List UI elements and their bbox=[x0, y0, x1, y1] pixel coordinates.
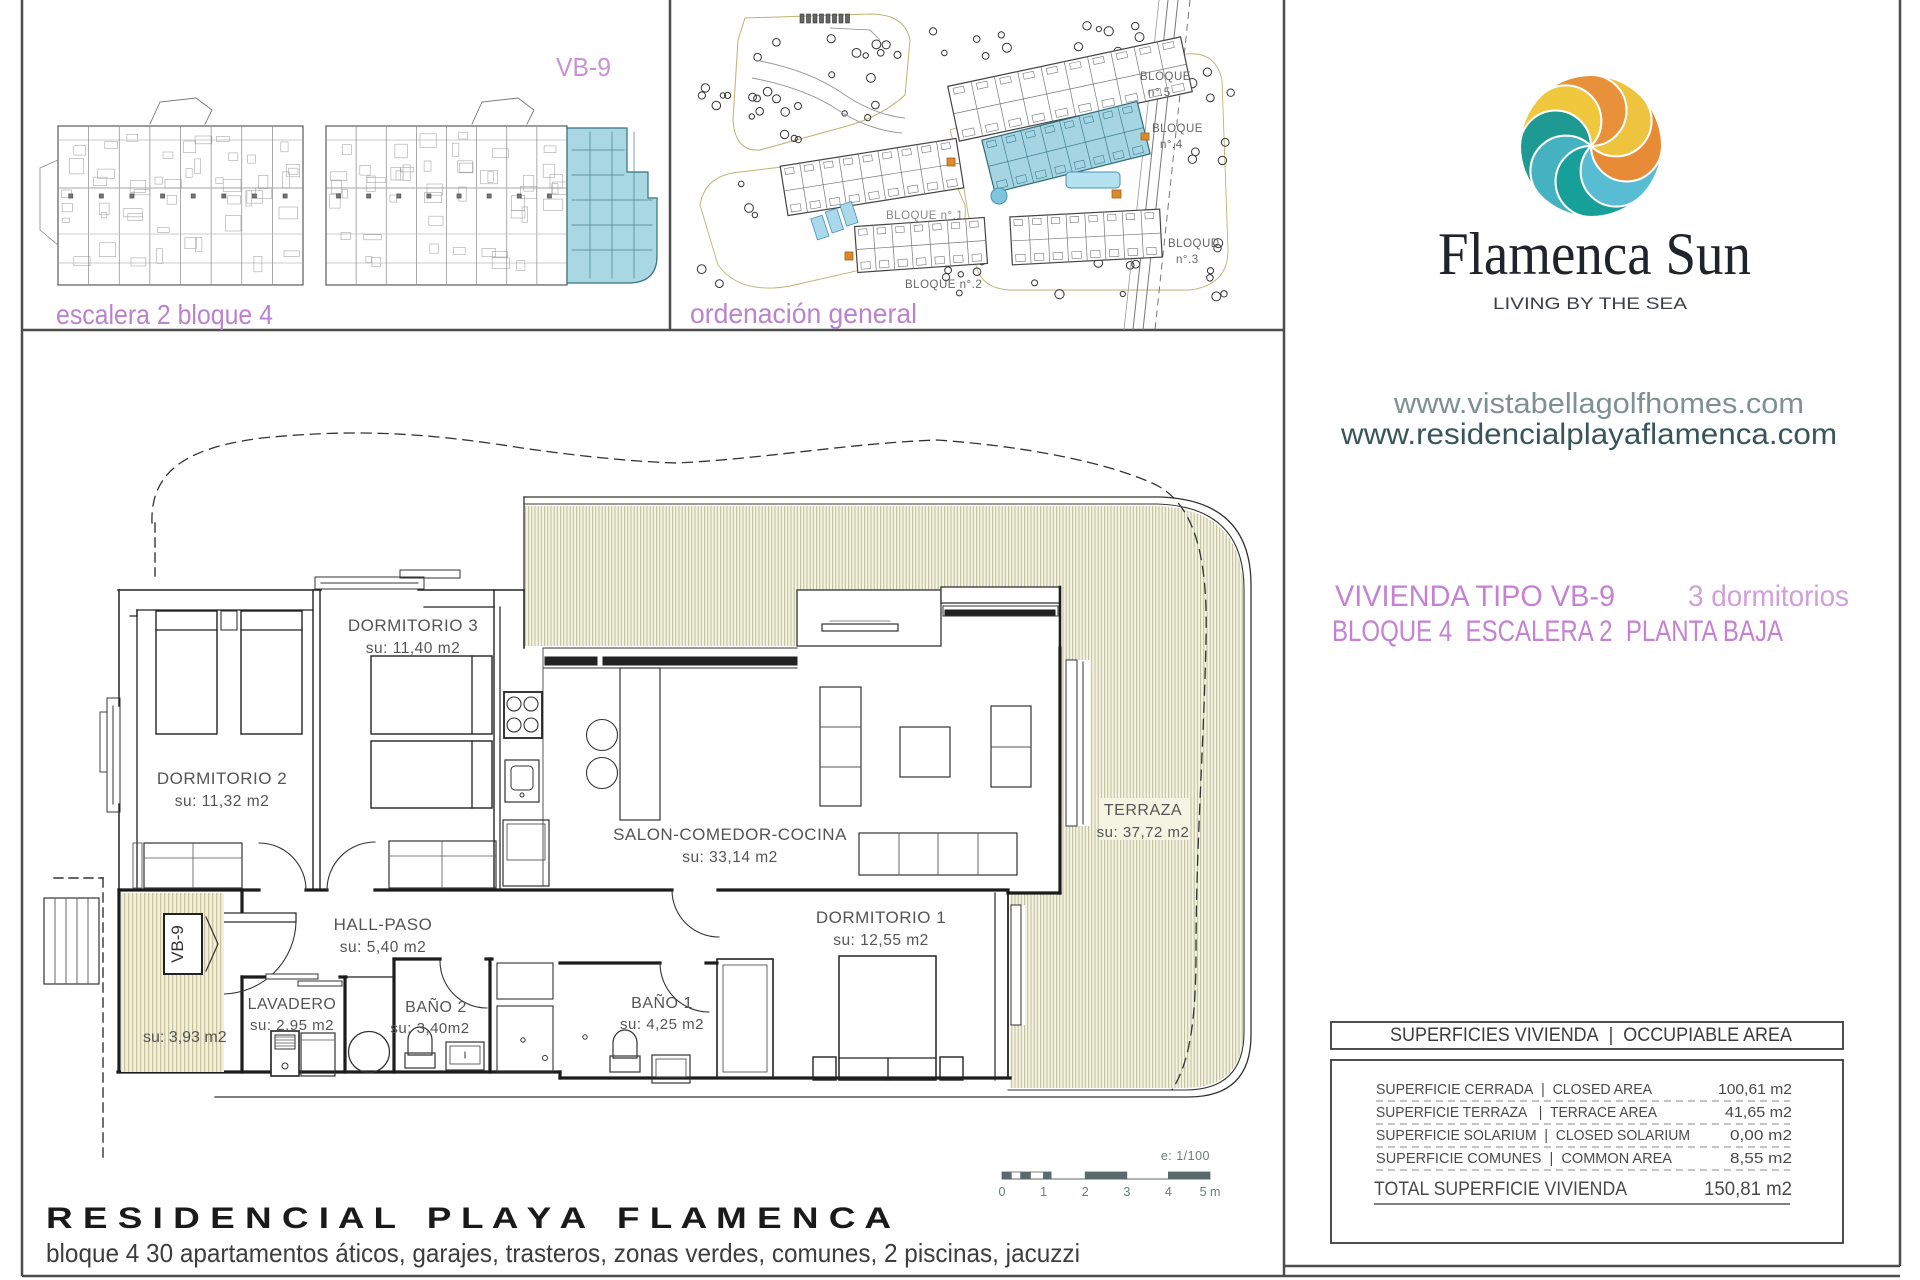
svg-text:2: 2 bbox=[1082, 1185, 1089, 1199]
svg-text:TERRAZA: TERRAZA bbox=[1104, 802, 1182, 819]
svg-text:su: 2,95 m2: su: 2,95 m2 bbox=[250, 1017, 334, 1034]
svg-text:SUPERFICIE CERRADA | CLOSED: SUPERFICIE CERRADA | CLOSED AREA bbox=[1376, 1081, 1652, 1098]
svg-text:HALL-PASO: HALL-PASO bbox=[334, 915, 433, 934]
svg-text:su: 33,14 m2: su: 33,14 m2 bbox=[682, 849, 778, 866]
svg-text:su: 3,93 m2: su: 3,93 m2 bbox=[143, 1029, 227, 1046]
svg-text:8,55 m2: 8,55 m2 bbox=[1730, 1150, 1792, 1167]
svg-text:su: 37,72 m2: su: 37,72 m2 bbox=[1097, 824, 1190, 841]
svg-text:www.residencialplayaflamenca.c: www.residencialplayaflamenca.com bbox=[1340, 418, 1837, 451]
svg-text:SALON-COMEDOR-COCINA: SALON-COMEDOR-COCINA bbox=[613, 825, 847, 844]
svg-text:ordenación general: ordenación general bbox=[690, 298, 917, 329]
svg-text:e: 1/100: e: 1/100 bbox=[1161, 1149, 1210, 1163]
svg-text:su: 11,40 m2: su: 11,40 m2 bbox=[366, 640, 460, 657]
svg-text:LAVADERO: LAVADERO bbox=[248, 996, 337, 1013]
svg-text:su: 5,40 m2: su: 5,40 m2 bbox=[340, 939, 427, 956]
svg-text:5 m: 5 m bbox=[1200, 1185, 1221, 1199]
svg-text:BLOQUE n°.1: BLOQUE n°.1 bbox=[886, 210, 963, 222]
svg-text:0,00 m2: 0,00 m2 bbox=[1730, 1127, 1792, 1144]
svg-text:SUPERFICIE COMUNES | COMMON: SUPERFICIE COMUNES | COMMON AREA bbox=[1376, 1150, 1672, 1167]
svg-text:BLOQUE: BLOQUE bbox=[1152, 123, 1203, 135]
svg-text:LIVING BY THE SEA: LIVING BY THE SEA bbox=[1493, 294, 1688, 313]
svg-text:SUPERFICIE SOLARIUM | CLOSED: SUPERFICIE SOLARIUM | CLOSED SOLARIUM bbox=[1376, 1127, 1690, 1144]
svg-text:TOTAL SUPERFICIE VIVIENDA: TOTAL SUPERFICIE VIVIENDA bbox=[1374, 1179, 1627, 1200]
svg-text:BLOQUE n°.2: BLOQUE n°.2 bbox=[905, 279, 982, 291]
svg-text:3: 3 bbox=[1123, 1185, 1130, 1199]
svg-text:SUPERFICIE TERRAZA | TERRAC: SUPERFICIE TERRAZA | TERRACE AREA bbox=[1376, 1104, 1657, 1121]
svg-text:su: 12,55 m2: su: 12,55 m2 bbox=[833, 932, 929, 949]
svg-text:R E S I D E N C I A L P L A: R E S I D E N C I A L P L A Y A F L A M … bbox=[46, 1202, 891, 1235]
svg-text:n°.3: n°.3 bbox=[1176, 254, 1199, 266]
svg-text:BAÑO 1: BAÑO 1 bbox=[631, 992, 693, 1012]
svg-text:0: 0 bbox=[999, 1185, 1006, 1199]
svg-text:n°.5: n°.5 bbox=[1148, 87, 1171, 99]
svg-text:escalera 2 bloque 4: escalera 2 bloque 4 bbox=[56, 299, 273, 330]
svg-text:su: 11,32 m2: su: 11,32 m2 bbox=[175, 793, 269, 810]
svg-text:3 dormitorios: 3 dormitorios bbox=[1688, 580, 1849, 613]
svg-text:1: 1 bbox=[1040, 1185, 1047, 1199]
svg-text:Flamenca Sun: Flamenca Sun bbox=[1438, 221, 1751, 287]
svg-text:100,61 m2: 100,61 m2 bbox=[1718, 1081, 1792, 1098]
svg-text:BLOQUE: BLOQUE bbox=[1140, 71, 1191, 83]
svg-text:su: 4,25 m2: su: 4,25 m2 bbox=[620, 1016, 704, 1033]
svg-text:su: 3,40m2: su: 3,40m2 bbox=[390, 1020, 469, 1037]
svg-text:VB-9: VB-9 bbox=[168, 925, 187, 963]
svg-text:n°.4: n°.4 bbox=[1160, 139, 1183, 151]
svg-text:VIVIENDA TIPO VB-9: VIVIENDA TIPO VB-9 bbox=[1335, 580, 1615, 613]
svg-text:DORMITORIO 1: DORMITORIO 1 bbox=[816, 908, 946, 927]
svg-text:DORMITORIO 3: DORMITORIO 3 bbox=[348, 616, 478, 635]
svg-text:BAÑO 2: BAÑO 2 bbox=[405, 996, 467, 1016]
svg-text:BLOQUE 4 ESCALERA 2 PLANTA B: BLOQUE 4 ESCALERA 2 PLANTA BAJA bbox=[1332, 615, 1783, 648]
svg-text:SUPERFICIES VIVIENDA | OCCUP: SUPERFICIES VIVIENDA | OCCUPIABLE AREA bbox=[1390, 1024, 1792, 1046]
svg-text:BLOQUD: BLOQUD bbox=[1168, 238, 1220, 250]
svg-text:VB-9: VB-9 bbox=[556, 52, 611, 82]
svg-text:4: 4 bbox=[1165, 1185, 1172, 1199]
svg-text:150,81 m2: 150,81 m2 bbox=[1704, 1179, 1792, 1200]
svg-text:bloque 4 30 apartamentos ático: bloque 4 30 apartamentos áticos, garajes… bbox=[46, 1238, 1080, 1268]
svg-text:41,65 m2: 41,65 m2 bbox=[1725, 1104, 1792, 1121]
svg-text:DORMITORIO 2: DORMITORIO 2 bbox=[157, 769, 287, 788]
svg-text:www.vistabellagolfhomes.com: www.vistabellagolfhomes.com bbox=[1393, 388, 1804, 420]
